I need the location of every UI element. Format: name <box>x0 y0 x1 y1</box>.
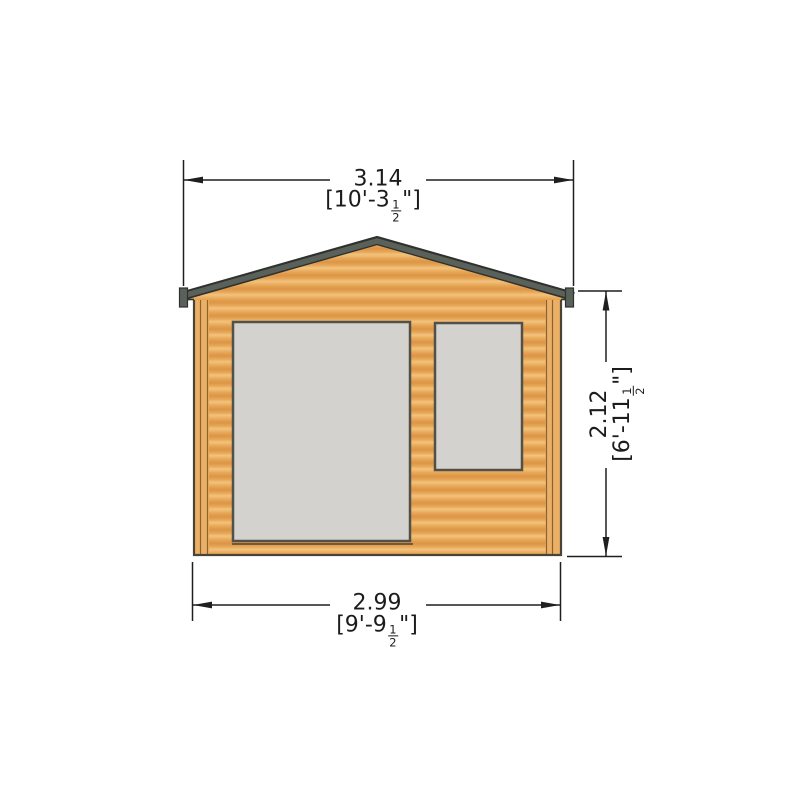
fraction-numerator: 1 <box>391 198 401 211</box>
roof-gable <box>180 241 574 308</box>
roof-trim-end-right <box>566 288 574 307</box>
window-glazing <box>435 323 522 470</box>
arrowhead-bottom <box>603 537 610 556</box>
wall-height-label: 2.12 [6'-1112"] <box>588 366 646 462</box>
imperial-suffix: "] <box>402 187 421 212</box>
imperial-prefix: [10'-3 <box>325 187 390 212</box>
imperial-prefix: [6'-11 <box>610 397 635 462</box>
door-opening <box>232 322 413 544</box>
fraction-denominator: 2 <box>634 386 646 396</box>
fraction: 12 <box>391 198 401 224</box>
fraction-numerator: 1 <box>388 623 398 636</box>
arrowhead-left <box>184 177 203 184</box>
gable-face <box>181 244 573 300</box>
wall-height-metric-label: 2.12 <box>588 366 611 462</box>
cabin-elevation-drawing <box>0 0 800 800</box>
corner-post-right <box>546 298 562 555</box>
overall-width-imperial-label: [10'-312"] <box>325 188 421 223</box>
door-glazing <box>233 322 410 541</box>
imperial-suffix: "] <box>399 612 418 637</box>
arrowhead-left <box>193 602 212 609</box>
technical-drawing-canvas: 3.14 [10'-312"] 2.99 [9'-912"] 2.12 [6'-… <box>0 0 800 800</box>
fraction-denominator: 2 <box>391 211 401 223</box>
corner-post-left <box>194 298 209 555</box>
arrowhead-top <box>603 292 610 311</box>
imperial-suffix: "] <box>610 366 635 385</box>
base-width-metric-label: 2.99 <box>353 591 402 614</box>
fraction-numerator: 1 <box>621 386 634 396</box>
fraction: 12 <box>388 623 398 649</box>
fraction: 12 <box>621 386 647 396</box>
window-opening <box>435 323 522 470</box>
arrowhead-right <box>554 177 573 184</box>
arrowhead-right <box>541 602 560 609</box>
roof-trim-end-left <box>180 288 188 307</box>
base-width-imperial-label: [9'-912"] <box>336 613 418 648</box>
wall-height-imperial-label: [6'-1112"] <box>611 366 646 462</box>
imperial-prefix: [9'-9 <box>336 612 387 637</box>
fraction-denominator: 2 <box>388 636 398 648</box>
